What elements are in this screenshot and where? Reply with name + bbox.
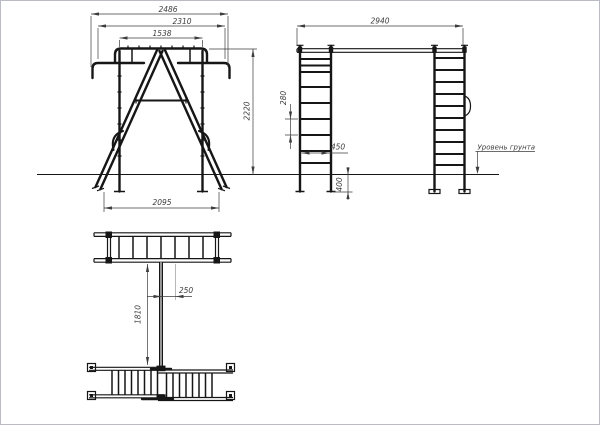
side-view: [296, 45, 471, 193]
front-view: [92, 46, 230, 192]
drawing-page: 2486 2310 1538 2220 2095 2940: [0, 0, 600, 425]
dim-front-height: 2220: [243, 101, 252, 120]
dim-plan-frame-length: 1810: [134, 305, 143, 324]
dim-front-base-width: 2095: [152, 198, 171, 207]
dim-side-ladder-width: 450: [331, 143, 346, 152]
dim-plan-rung-spacing: 250: [179, 286, 194, 295]
ground-level-label: Уровень грунта: [478, 144, 536, 152]
dim-front-top-rail-width: 1538: [152, 29, 171, 38]
dim-side-overall-length: 2940: [370, 17, 389, 26]
plan-view-dimensions: 250 1810: [134, 264, 194, 365]
dim-side-embedment-depth: 400: [335, 177, 344, 192]
front-view-dimensions: 2486 2310 1538 2220 2095: [91, 5, 257, 212]
technical-drawing: 2486 2310 1538 2220 2095 2940: [1, 1, 600, 425]
side-view-dimensions: 2940 280 450 400 Уровень грунта: [279, 17, 535, 200]
plan-view: [88, 232, 235, 401]
dim-side-rung-spacing: 280: [279, 91, 288, 106]
dim-front-overall-width: 2486: [158, 5, 177, 14]
dim-front-outer-width: 2310: [172, 17, 191, 26]
